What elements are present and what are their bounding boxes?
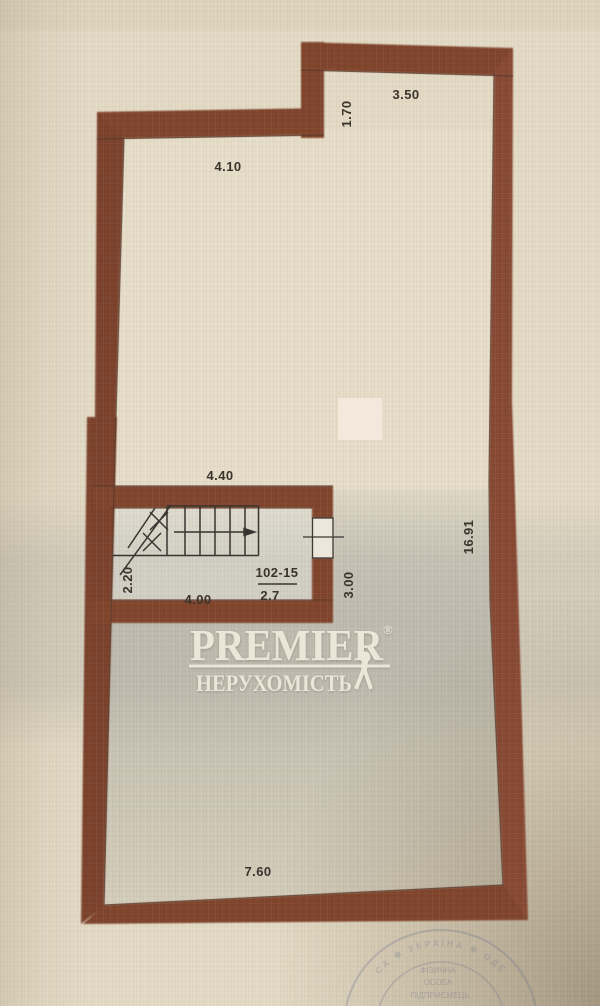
- svg-text:7.60: 7.60: [245, 864, 272, 879]
- svg-text:2.20: 2.20: [120, 567, 135, 594]
- svg-text:PREMIER: PREMIER: [190, 621, 384, 670]
- svg-text:®: ®: [383, 622, 393, 637]
- svg-text:ФІЗИЧНА: ФІЗИЧНА: [420, 966, 456, 975]
- svg-text:102-15: 102-15: [256, 565, 299, 580]
- svg-text:4.10: 4.10: [215, 159, 242, 174]
- svg-text:1.70: 1.70: [339, 101, 354, 128]
- svg-text:3.50: 3.50: [393, 87, 420, 102]
- svg-text:3.00: 3.00: [341, 572, 356, 599]
- svg-text:16.91: 16.91: [461, 520, 476, 555]
- svg-text:ОСОБА: ОСОБА: [424, 978, 453, 987]
- svg-text:ПІДПРИЄМЕЦЬ: ПІДПРИЄМЕЦЬ: [410, 991, 469, 1000]
- svg-text:2.7: 2.7: [260, 588, 279, 603]
- svg-text:НЕРУХОМІСТЬ: НЕРУХОМІСТЬ: [196, 671, 352, 696]
- svg-text:4.00: 4.00: [185, 592, 212, 607]
- svg-text:4.40: 4.40: [207, 468, 234, 483]
